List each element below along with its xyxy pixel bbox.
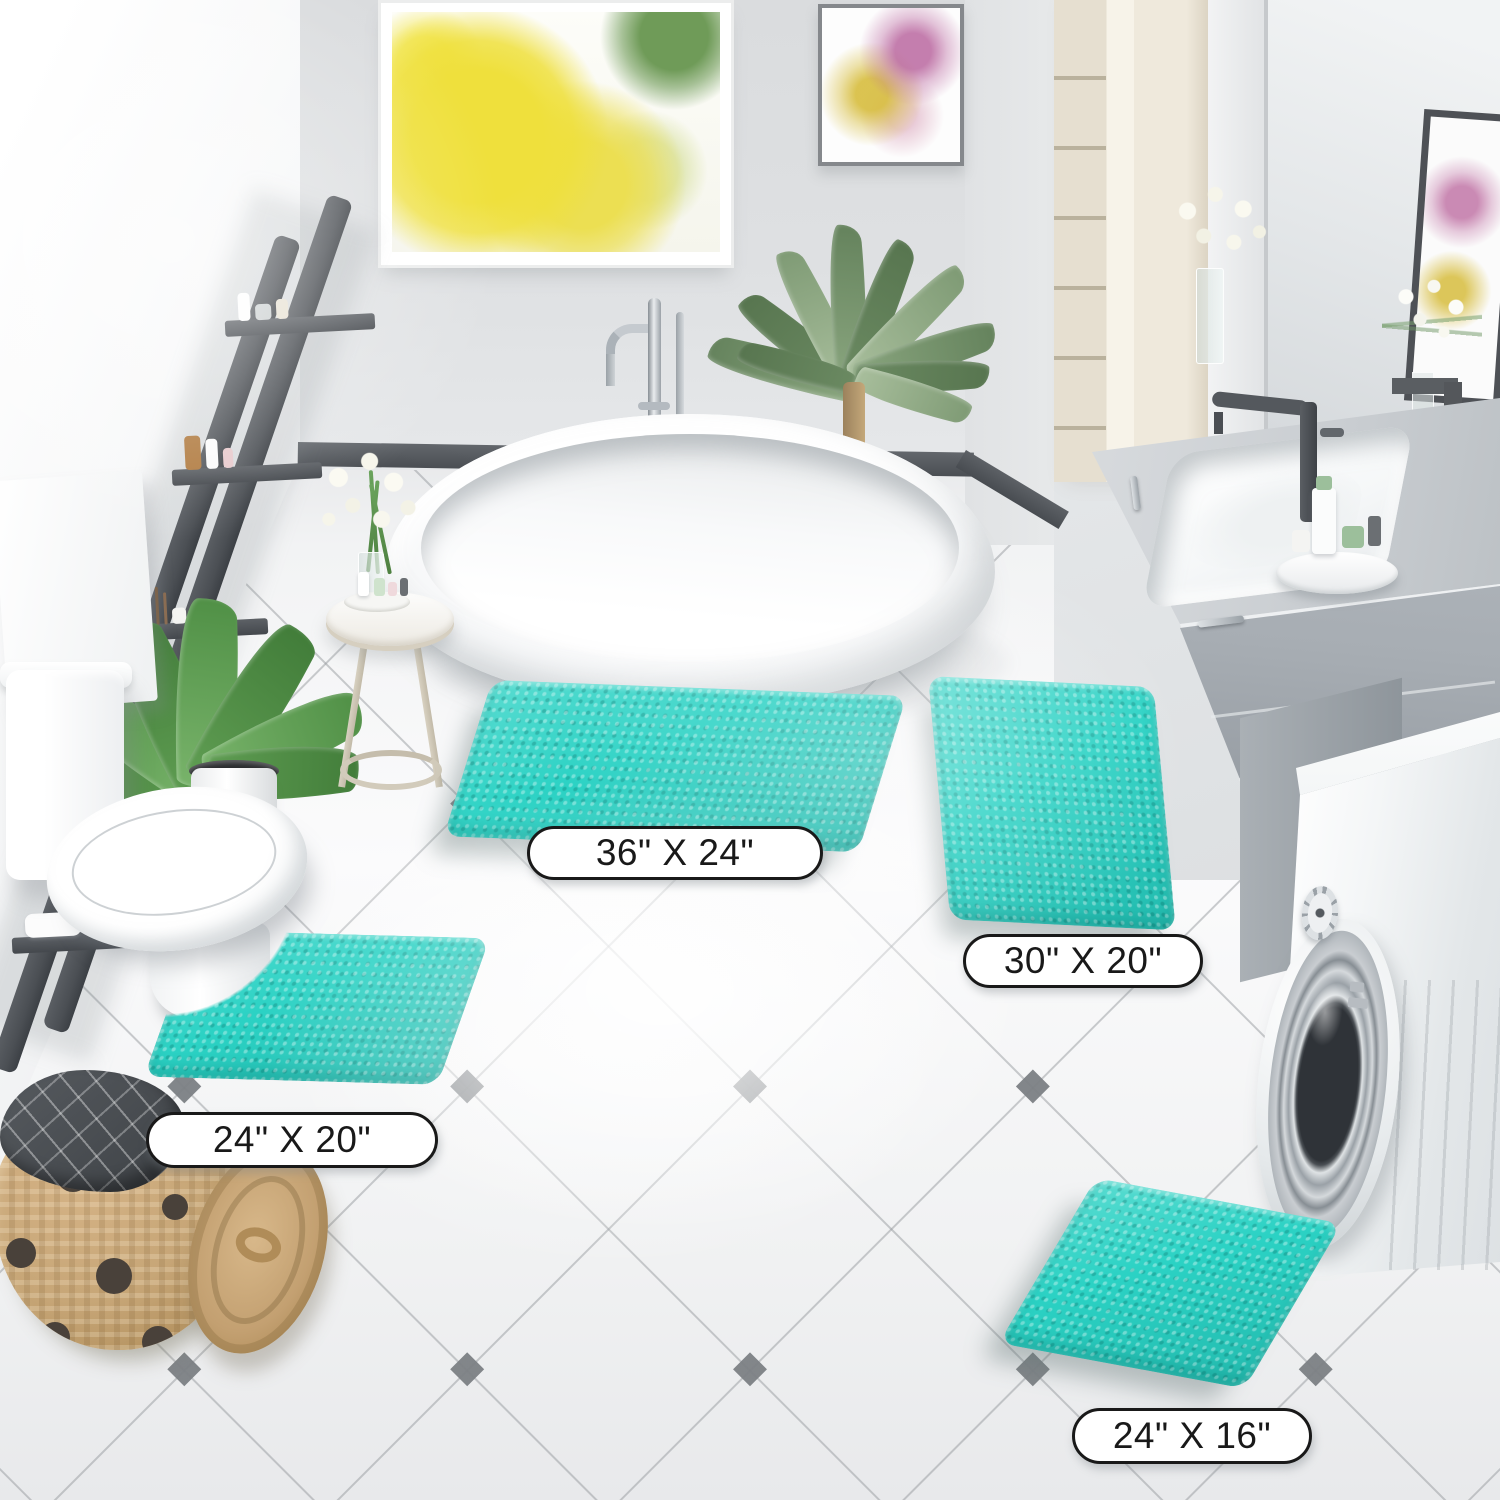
bottle (223, 448, 234, 468)
size-label-36x24: 36" X 24" (527, 826, 823, 880)
counter-soap-tray (1276, 552, 1398, 594)
basket-dot (96, 1258, 132, 1294)
pump-bottle (1312, 488, 1336, 554)
window-view-yellow-trees (392, 12, 720, 252)
mirror-reflection-flowers (1382, 278, 1482, 382)
contour-bath-mat-24x20 (144, 930, 490, 1085)
window (378, 0, 734, 268)
cosmetic-jar (388, 582, 397, 596)
bottle (276, 299, 289, 320)
toilet-seat-seam (65, 797, 283, 929)
white-gladiolus-flowers (312, 452, 432, 568)
faucet-handle (1320, 428, 1344, 437)
faucet-nozzle (1214, 412, 1223, 434)
size-label-30x20: 30" X 20" (963, 934, 1203, 988)
wall-art-watercolor (818, 4, 964, 166)
table-base-ring (340, 750, 442, 790)
faucet-arm (1211, 391, 1308, 416)
dark-bottle (1368, 516, 1381, 546)
washer-button (1348, 997, 1369, 1009)
basket-dot (6, 1238, 36, 1268)
cosmetic-bottle (400, 578, 408, 596)
basket-dot (142, 1326, 174, 1350)
faucet-handle (638, 402, 670, 410)
pump-bottle (205, 439, 219, 470)
toiletry-bottles (237, 291, 288, 322)
basket-dot (162, 1194, 188, 1220)
bottle (237, 293, 250, 322)
cosmetic-jar (374, 578, 385, 596)
washing-machine (1230, 680, 1500, 1280)
washer-dial-cap (1306, 892, 1334, 934)
counter-glass-vase (1196, 268, 1224, 364)
cabinet-open-shelves (1054, 10, 1106, 440)
washer-button (1350, 981, 1365, 992)
pump-head (1316, 476, 1332, 490)
palm-plant (735, 150, 995, 460)
faucet-riser (648, 298, 661, 434)
basket-dot (40, 1322, 70, 1350)
bath-mat-30x20 (928, 676, 1176, 930)
green-jar (1342, 526, 1364, 548)
door-glass-glint (1304, 977, 1346, 1048)
size-label-24x16: 24" X 16" (1072, 1408, 1312, 1464)
jar (255, 303, 272, 320)
side-table (318, 452, 478, 802)
size-label-24x20: 24" X 20" (146, 1112, 438, 1168)
faucet-spout-tip (606, 354, 615, 386)
cosmetic-bottle (358, 572, 369, 596)
amber-bottle (184, 435, 202, 470)
bathroom-product-photo: 36" X 24" 30" X 20" 24" X 20" 24" X 16" (0, 0, 1500, 1500)
toiletry-bottles (184, 434, 234, 470)
white-jar (1292, 530, 1310, 552)
bathtub-interior (421, 434, 959, 662)
